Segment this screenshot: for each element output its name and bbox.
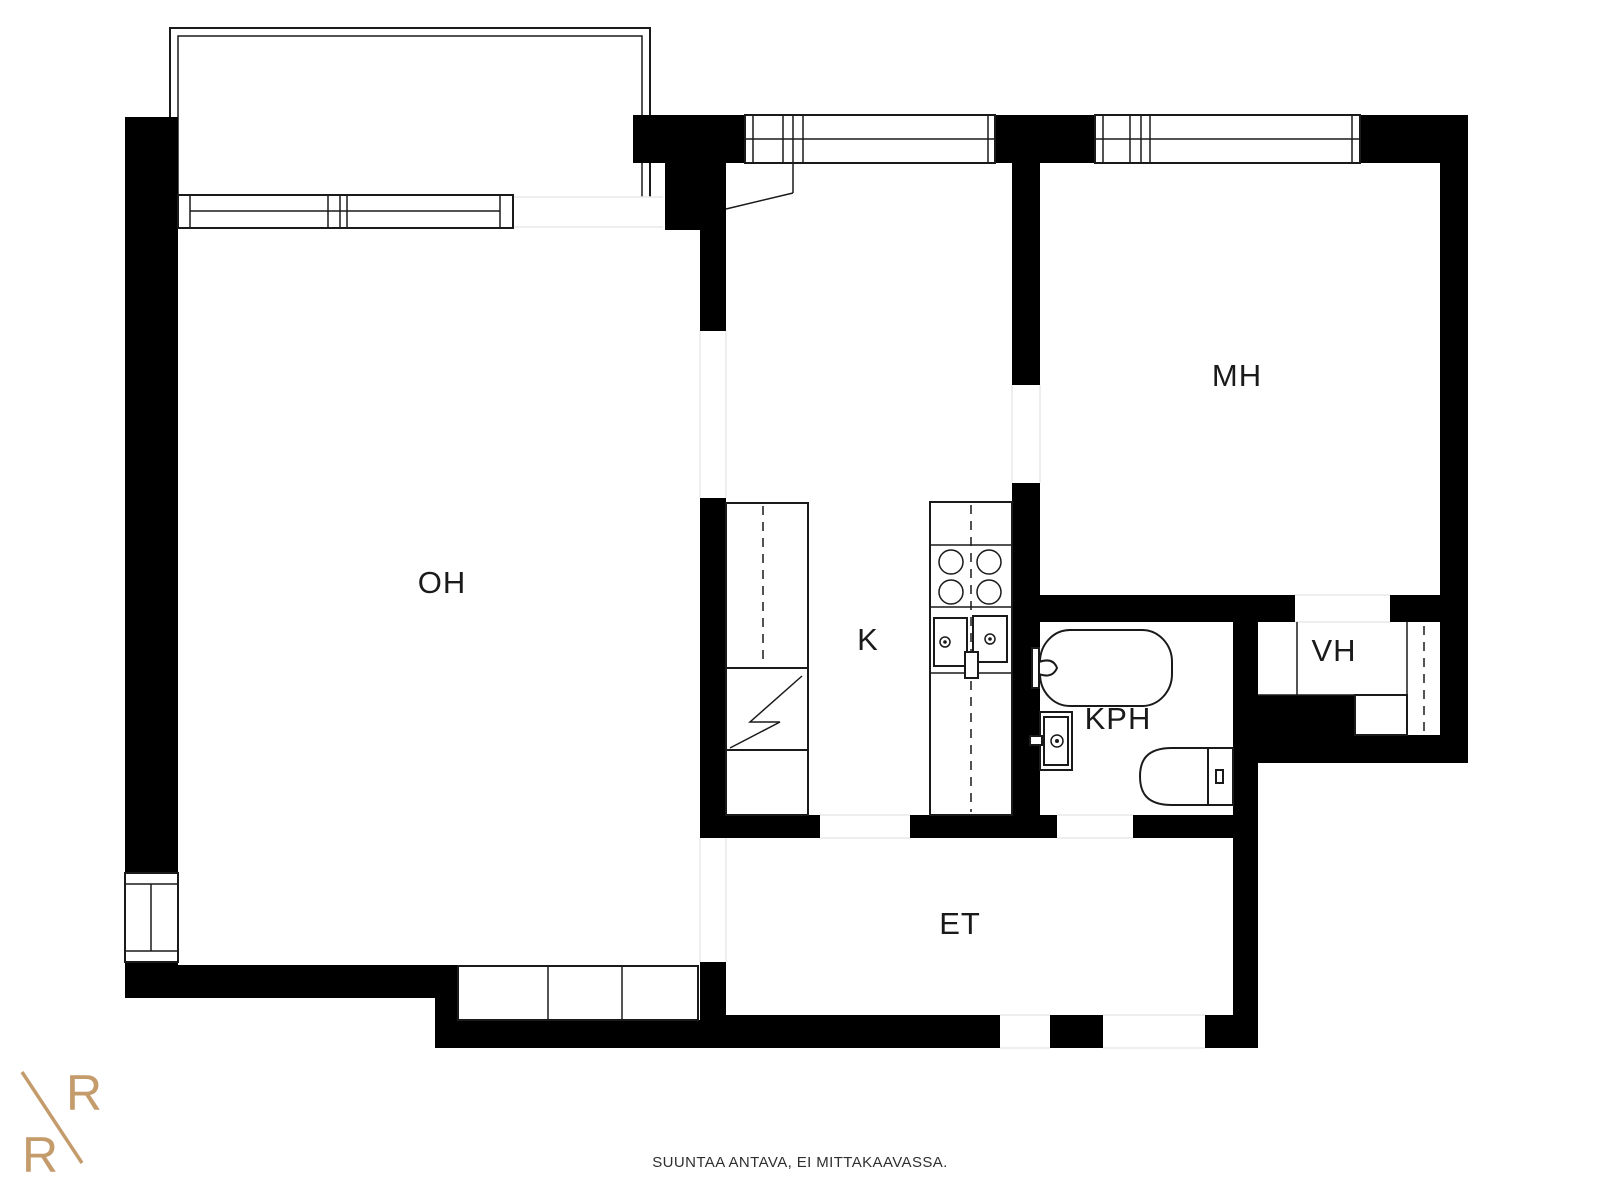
room-label-kph: KPH (1085, 701, 1152, 736)
kitchen-counter (930, 502, 1012, 815)
room-label-oh: OH (418, 565, 467, 600)
room-label-mh: MH (1212, 358, 1262, 393)
kitchen-window (745, 115, 995, 163)
disclaimer-text: SUUNTAA ANTAVA, EI MITTAKAAVASSA. (652, 1154, 947, 1171)
floor-plan-canvas: OH K MH VH KPH ET R R SUUNTAA ANTAVA, EI… (0, 0, 1600, 1200)
kitchen-vent-corner (726, 163, 793, 209)
balcony-outline (170, 28, 650, 197)
logo-letter-top: R (66, 1065, 102, 1121)
kitchen-tall-cabinet (726, 503, 808, 815)
room-label-et: ET (939, 906, 981, 941)
living-room-window (178, 195, 513, 228)
room-labels: OH K MH VH KPH ET (418, 358, 1357, 941)
left-wall-window (125, 873, 178, 962)
logo-letter-bottom: R (22, 1127, 58, 1183)
brand-logo: R R (22, 1065, 102, 1183)
toilet-icon (1140, 748, 1233, 805)
floor-plan-page: OH K MH VH KPH ET R R SUUNTAA ANTAVA, EI… (0, 0, 1600, 1200)
room-label-vh: VH (1311, 633, 1356, 668)
room-label-k: K (857, 622, 879, 657)
bedroom-window (1095, 115, 1360, 163)
bathtub-icon (1032, 630, 1172, 706)
wardrobe-cabinets (458, 966, 698, 1020)
